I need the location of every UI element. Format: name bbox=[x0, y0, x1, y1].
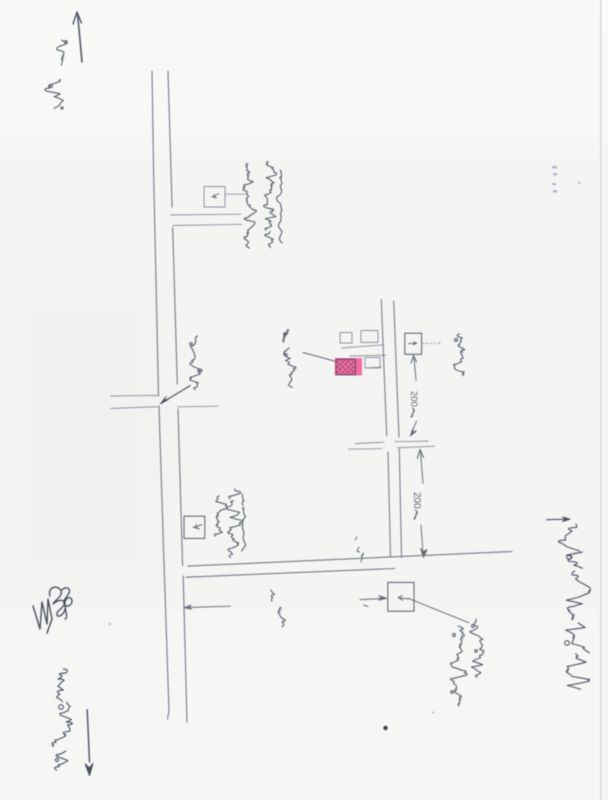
svg-text:200: 200 bbox=[411, 492, 422, 509]
svg-text:200: 200 bbox=[408, 391, 419, 407]
